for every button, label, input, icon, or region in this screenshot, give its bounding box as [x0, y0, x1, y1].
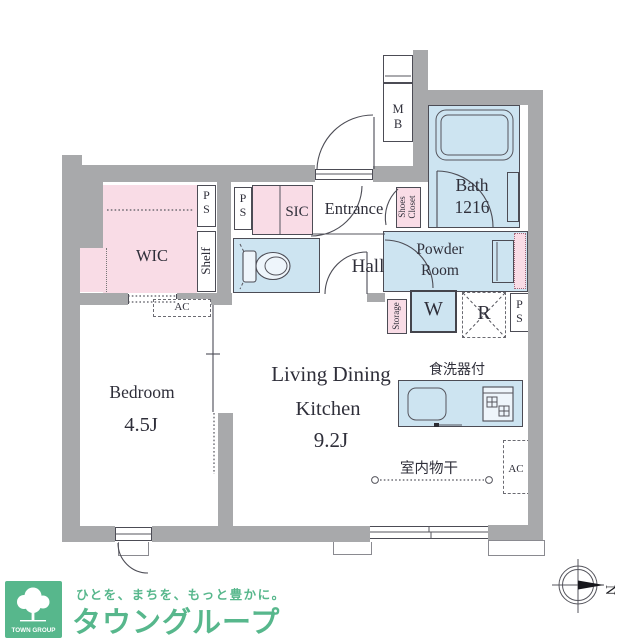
plan-linework: N TOWN GROUP [0, 0, 640, 640]
entrance-label: Entrance [314, 199, 394, 218]
pipe-space-2-label: P S [234, 191, 252, 219]
brand-logo-badge: TOWN GROUP [5, 581, 62, 638]
bedroom-balcony-door-swing [118, 543, 148, 573]
bathtub-icon [436, 110, 513, 160]
balcony-window-lines [370, 526, 488, 539]
wic-label: WIC [122, 246, 182, 265]
refrigerator-label: R [462, 302, 506, 326]
shoes-closet-label: Shoes Closet [397, 185, 419, 229]
bedroom-sliding-door [206, 305, 220, 474]
toilet-icon [243, 251, 290, 282]
ac-ldk-label: AC [498, 463, 534, 476]
sink-icon [408, 388, 446, 420]
indoor-drying-note: 室内物干 [379, 461, 479, 478]
stove-icon [483, 387, 513, 421]
powder-room-label: Powder Room [390, 240, 490, 282]
compass: N [552, 559, 617, 613]
ldk-label-line2: Kitchen [278, 397, 378, 421]
shelf-label: Shelf [198, 236, 214, 286]
pipe-space-3-label: P S [510, 297, 529, 325]
brand-name: タウングループ [72, 599, 280, 640]
washer-label: W [410, 298, 457, 322]
entrance-door-swing [317, 115, 374, 169]
pipe-space-1-label: P S [197, 188, 216, 216]
bedroom-label: Bedroom [82, 382, 202, 403]
compass-north-letter: N [602, 585, 617, 595]
storage-label: Storage [391, 294, 403, 338]
bath-label: Bath 1216 [430, 175, 514, 219]
counter-handle [434, 423, 439, 427]
hall-label: Hall [338, 256, 398, 278]
ldk-label-line1: Living Dining [241, 362, 421, 387]
compass-needle [578, 581, 604, 590]
ldk-size-label: 9.2J [281, 428, 381, 453]
bedroom-size-label: 4.5J [91, 413, 191, 437]
ac-bedroom-label: AC [160, 301, 204, 314]
badge-text: TOWN GROUP [12, 627, 56, 634]
dishwasher-note: 食洗器付 [407, 363, 507, 380]
floor-plan: N TOWN GROUP WIC Shelf P S P S SIC Entra… [0, 0, 640, 640]
meter-box-label: M B [383, 102, 413, 132]
